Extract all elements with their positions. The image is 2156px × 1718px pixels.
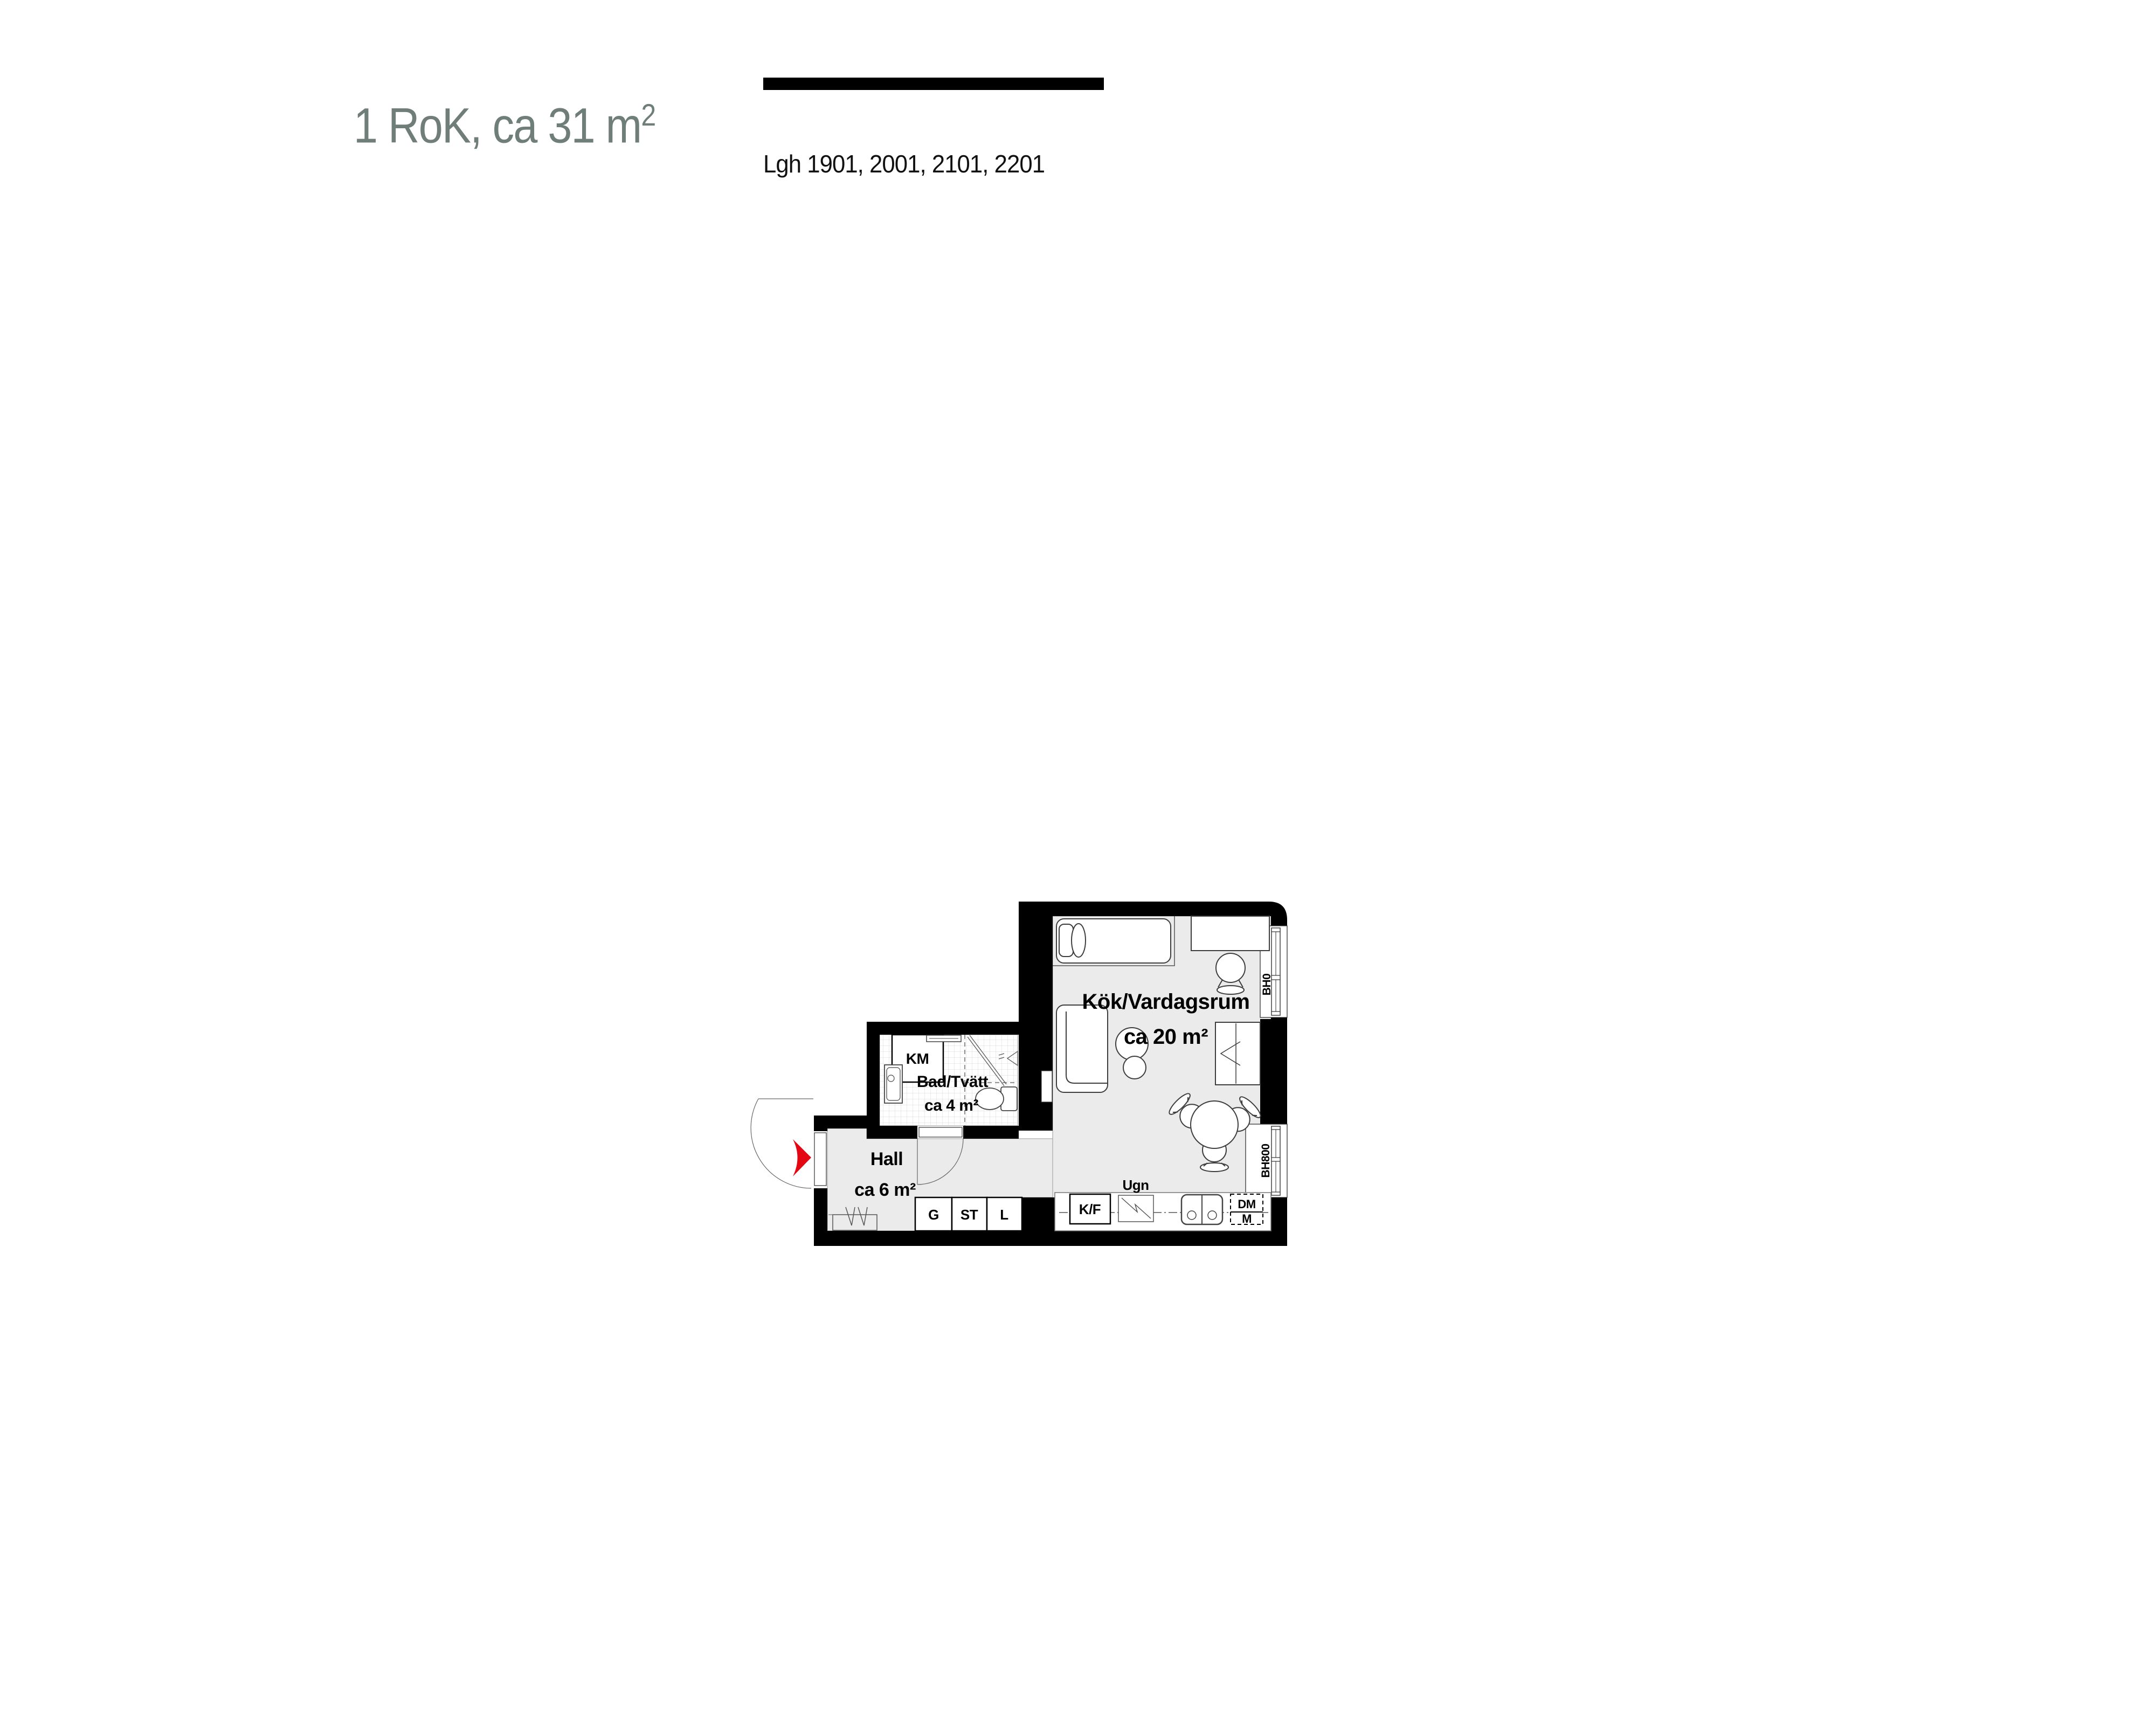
floor-plan-svg: BH0 BH800 xyxy=(741,897,1291,1253)
entrance-arrow-icon xyxy=(793,1139,811,1176)
dishwasher-microwave: DM M xyxy=(1231,1194,1263,1225)
sofa xyxy=(1056,1005,1108,1092)
fridge-freezer-label: K/F xyxy=(1079,1201,1101,1217)
bath-area: ca 4 m² xyxy=(924,1097,978,1114)
bathroom-sink xyxy=(884,1065,902,1103)
page-title-text: 1 RoK, ca 31 m xyxy=(354,98,641,153)
window-bottom-label: BH800 xyxy=(1260,1144,1272,1178)
kitchen-living-area: ca 20 m² xyxy=(1124,1025,1208,1049)
kitchen-living-name: Kök/Vardagsrum xyxy=(1082,990,1250,1014)
entry-door xyxy=(751,1099,826,1188)
page-title: 1 RoK, ca 31 m2 xyxy=(354,100,655,150)
divider-bar xyxy=(763,78,1104,90)
floor-plan: BH0 BH800 xyxy=(741,897,1291,1253)
dishwasher-label: DM xyxy=(1238,1197,1255,1211)
linen-cabinet-l: L xyxy=(987,1197,1022,1231)
linen-cabinet-label: L xyxy=(1000,1207,1008,1223)
fridge-freezer: K/F xyxy=(1070,1194,1110,1224)
washing-machine-label: KM xyxy=(906,1050,929,1067)
bath-shelf xyxy=(927,1035,961,1042)
hall-name: Hall xyxy=(870,1149,903,1169)
cleaning-cabinet-label: ST xyxy=(960,1207,978,1223)
wardrobe-g-label: G xyxy=(928,1207,939,1223)
oven-label: Ugn xyxy=(1122,1177,1149,1193)
wall-niche xyxy=(1041,1071,1052,1102)
page-title-superscript: 2 xyxy=(641,98,655,133)
desk xyxy=(1191,916,1269,951)
bath-name: Bad/Tvätt xyxy=(917,1073,989,1091)
tall-cabinet xyxy=(1215,1022,1260,1085)
apartment-ids: Lgh 1901, 2001, 2101, 2201 xyxy=(763,150,1045,178)
cleaning-cabinet-st: ST xyxy=(952,1197,987,1231)
desk-chair xyxy=(1216,953,1245,994)
stove: Ugn xyxy=(1118,1177,1153,1222)
window-top-label: BH0 xyxy=(1261,974,1273,996)
kitchen-sink xyxy=(1181,1195,1222,1224)
microwave-label: M xyxy=(1242,1212,1252,1225)
wardrobe-g: G xyxy=(915,1197,952,1231)
hall-area: ca 6 m² xyxy=(854,1180,916,1200)
bed xyxy=(1053,916,1174,966)
window-bottom: BH800 xyxy=(1246,1124,1287,1197)
dining-table xyxy=(1191,1101,1238,1148)
